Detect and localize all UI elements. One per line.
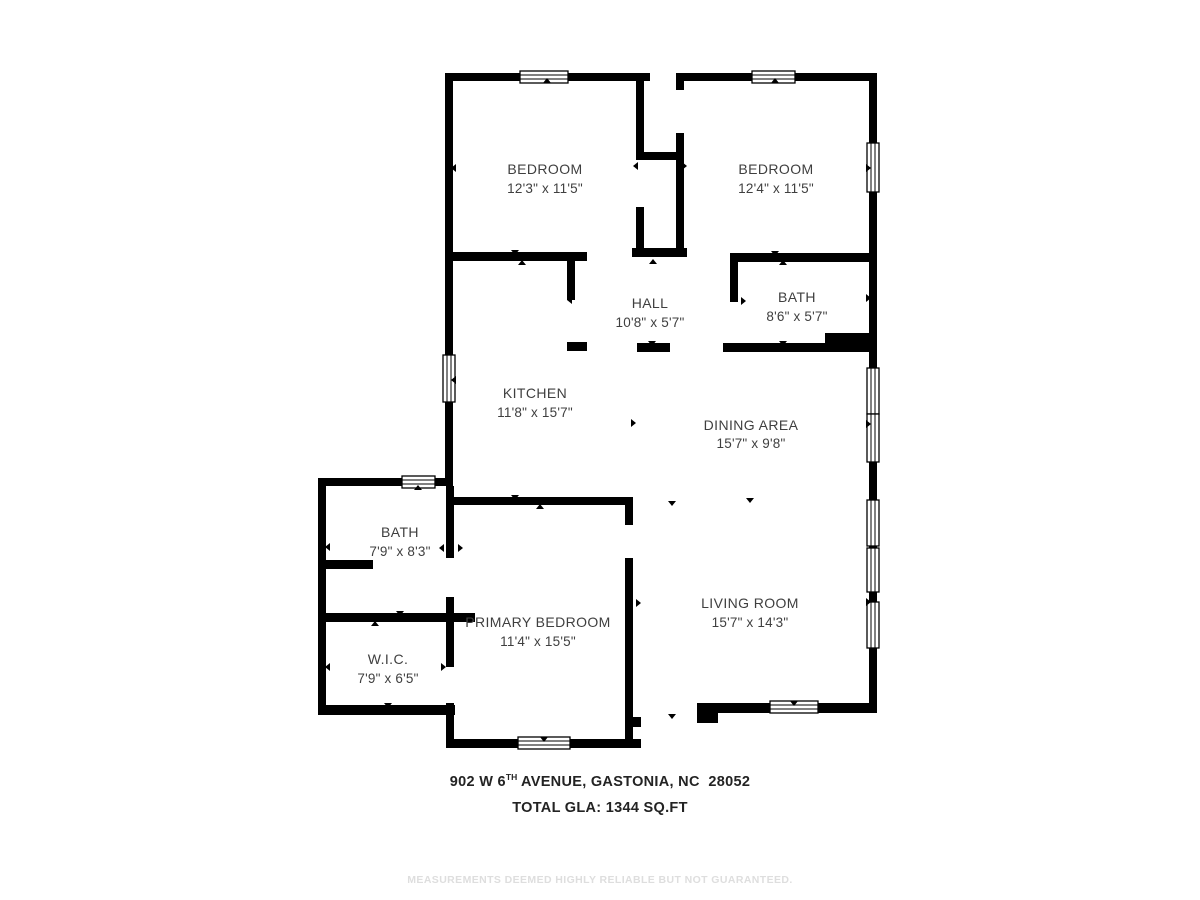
room-name: BATH bbox=[778, 289, 816, 305]
measurement-tick-icon bbox=[631, 419, 636, 427]
wall-segment bbox=[730, 253, 869, 262]
wall-segment bbox=[697, 713, 718, 723]
room-name: DINING AREA bbox=[704, 417, 799, 433]
room-dims: 11'8" x 15'7" bbox=[497, 405, 573, 420]
wall-segment bbox=[446, 486, 454, 558]
room-name: PRIMARY BEDROOM bbox=[465, 614, 611, 630]
address-block: 902 W 6TH AVENUE, GASTONIA, NC 28052 TOT… bbox=[0, 764, 1200, 821]
wall-segment bbox=[446, 497, 633, 505]
wall-segment bbox=[625, 717, 641, 727]
wall-segment bbox=[637, 343, 670, 352]
wall-segment bbox=[636, 152, 684, 160]
room-name: KITCHEN bbox=[503, 385, 567, 401]
measurement-tick-icon bbox=[746, 498, 754, 503]
measurement-tick-icon bbox=[668, 714, 676, 719]
room-label-hall: HALL 10'8" x 5'7" bbox=[616, 295, 685, 330]
wall-segment bbox=[676, 133, 684, 252]
room-label-bedroom-2: BEDROOM 12'4" x 11'5" bbox=[738, 161, 814, 196]
wall-segment bbox=[445, 73, 453, 486]
address-rest: AVENUE, GASTONIA, NC 28052 bbox=[517, 774, 750, 790]
room-name: BEDROOM bbox=[507, 161, 582, 177]
wall-segment bbox=[318, 478, 326, 715]
room-label-dining-area: DINING AREA 15'7" x 9'8" bbox=[704, 417, 799, 451]
wall-segment bbox=[676, 81, 684, 90]
room-label-primary-bedroom: PRIMARY BEDROOM 11'4" x 15'5" bbox=[465, 614, 611, 649]
wall-segment bbox=[567, 342, 587, 351]
address-prefix: 902 W 6 bbox=[450, 774, 506, 790]
measurement-tick-icon bbox=[668, 501, 676, 506]
room-dims: 8'6" x 5'7" bbox=[766, 309, 827, 324]
window-icon bbox=[867, 548, 879, 592]
measurement-tick-icon bbox=[458, 544, 463, 552]
wall-segment bbox=[723, 343, 825, 352]
wall-segment bbox=[446, 252, 587, 261]
address-line: 902 W 6TH AVENUE, GASTONIA, NC 28052 bbox=[0, 764, 1200, 795]
room-dims: 11'4" x 15'5" bbox=[500, 634, 576, 649]
measurement-ticks-layer bbox=[325, 78, 871, 742]
measurement-tick-icon bbox=[649, 259, 657, 264]
window-icon bbox=[867, 368, 879, 414]
room-label-bedroom-1: BEDROOM 12'3" x 11'5" bbox=[507, 161, 583, 196]
room-dims: 7'9" x 6'5" bbox=[357, 671, 418, 686]
room-dims: 15'7" x 14'3" bbox=[712, 615, 789, 630]
wall-segment bbox=[825, 333, 869, 352]
window-icon bbox=[867, 602, 879, 648]
measurement-tick-icon bbox=[682, 162, 687, 170]
floor-plan-page: { "plan": { "rooms": [ {"name": "BEDROOM… bbox=[0, 0, 1200, 900]
wall-segment bbox=[730, 262, 738, 302]
window-icon bbox=[867, 414, 879, 462]
room-name: W.I.C. bbox=[368, 651, 409, 667]
room-dims: 12'4" x 11'5" bbox=[738, 181, 814, 196]
wall-segment bbox=[636, 81, 644, 158]
wall-segment bbox=[446, 703, 454, 748]
room-name: HALL bbox=[632, 295, 669, 311]
room-label-kitchen: KITCHEN 11'8" x 15'7" bbox=[497, 385, 573, 420]
wall-segment bbox=[318, 613, 475, 622]
room-label-living-room: LIVING ROOM 15'7" x 14'3" bbox=[701, 595, 799, 630]
room-name: BEDROOM bbox=[738, 161, 813, 177]
total-gla-line: TOTAL GLA: 1344 SQ.FT bbox=[0, 795, 1200, 821]
wall-segment bbox=[446, 597, 454, 667]
address-superscript: TH bbox=[506, 772, 517, 782]
wall-segment bbox=[567, 261, 575, 300]
room-label-wic: W.I.C. 7'9" x 6'5" bbox=[357, 651, 418, 686]
wall-segment bbox=[625, 727, 633, 748]
measurement-tick-icon bbox=[633, 162, 638, 170]
disclaimer-text: MEASUREMENTS DEEMED HIGHLY RELIABLE BUT … bbox=[0, 874, 1200, 886]
wall-segment bbox=[636, 207, 644, 252]
window-icon bbox=[867, 500, 879, 546]
room-dims: 12'3" x 11'5" bbox=[507, 181, 583, 196]
measurement-tick-icon bbox=[741, 297, 746, 305]
wall-segment bbox=[318, 705, 455, 715]
room-dims: 10'8" x 5'7" bbox=[616, 315, 685, 330]
room-dims: 7'9" x 8'3" bbox=[369, 544, 430, 559]
measurement-tick-icon bbox=[439, 544, 444, 552]
room-dims: 15'7" x 9'8" bbox=[717, 436, 786, 451]
wall-segment bbox=[326, 560, 373, 569]
wall-segment bbox=[632, 248, 687, 257]
measurement-tick-icon bbox=[441, 663, 446, 671]
measurement-tick-icon bbox=[636, 599, 641, 607]
room-label-bath-upper: BATH 8'6" x 5'7" bbox=[766, 289, 827, 324]
room-name: LIVING ROOM bbox=[701, 595, 799, 611]
room-labels-layer: BEDROOM 12'3" x 11'5" BEDROOM 12'4" x 11… bbox=[357, 161, 827, 686]
room-label-bath-lower: BATH 7'9" x 8'3" bbox=[369, 524, 430, 559]
window-icon bbox=[520, 71, 568, 83]
room-name: BATH bbox=[381, 524, 419, 540]
wall-segment bbox=[625, 558, 633, 717]
